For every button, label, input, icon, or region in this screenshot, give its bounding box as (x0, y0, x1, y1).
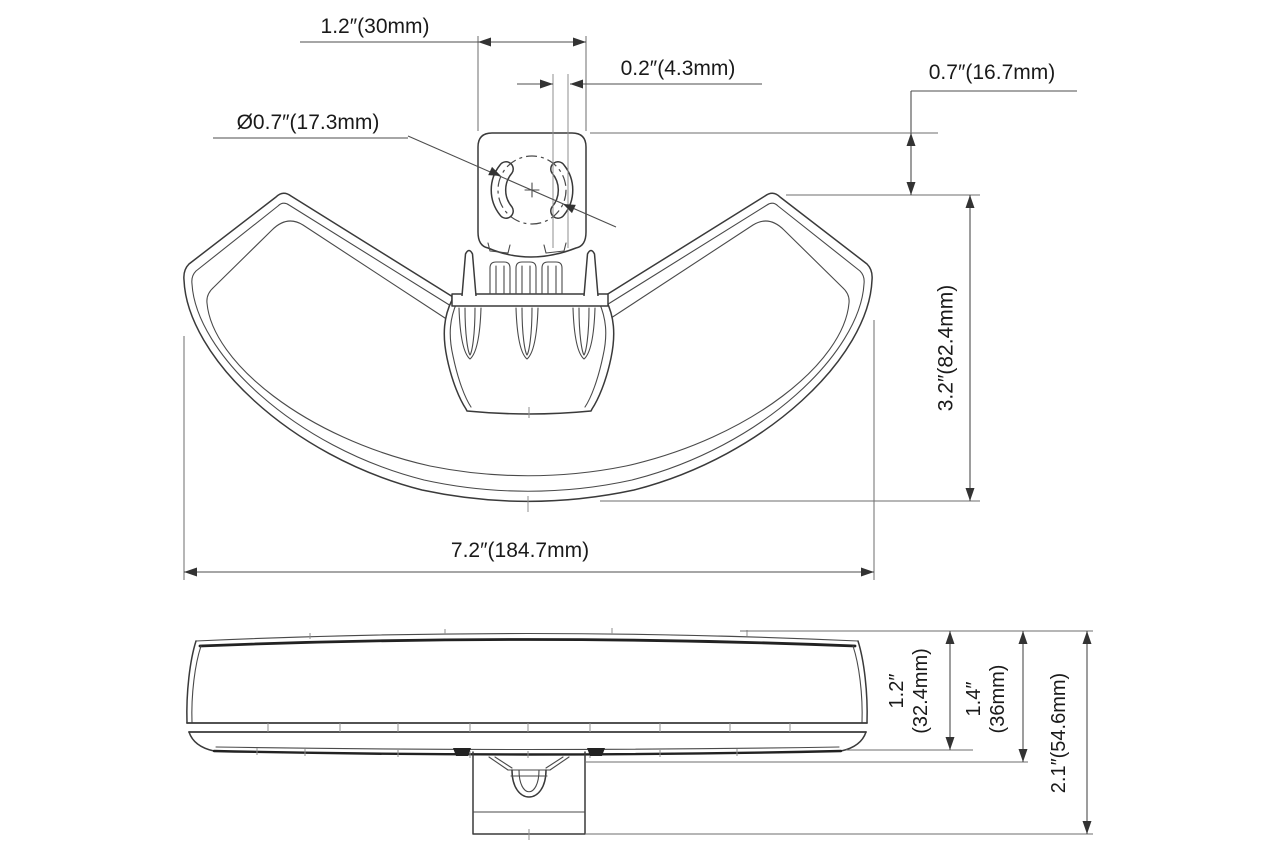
clamp-bolts (490, 262, 562, 294)
side-mount-bracket (453, 748, 605, 840)
side-right-edge-inner (853, 646, 862, 723)
front-mount-plate (478, 74, 586, 257)
dim-base-height-label-in: 1.4″ (963, 682, 985, 717)
dim-lens-height-label-mm: (32.4mm) (910, 648, 932, 734)
dim-base-height: 1.4″ (36mm) (585, 631, 1028, 762)
dim-lens-height-label-in: 1.2″ (886, 674, 908, 709)
dim-arrow (966, 195, 975, 208)
thumbscrew-loop-outer (512, 770, 546, 797)
clamp-jaw-right (587, 748, 605, 756)
dim-hole-diameter-label: Ø0.7″(17.3mm) (237, 111, 380, 134)
dim-body-height: 3.2″(82.4mm) (600, 195, 980, 501)
technical-drawing-page: 1.2″(30mm) 0.2″(4.3mm) Ø0.7″(17.3mm) 0.7… (0, 0, 1280, 853)
dim-overall-width-label: 7.2″(184.7mm) (451, 539, 589, 562)
dim-bracket-offset: 0.7″(16.7mm) (590, 61, 1077, 195)
dim-arrow (540, 80, 553, 89)
front-view: 1.2″(30mm) 0.2″(4.3mm) Ø0.7″(17.3mm) 0.7… (184, 15, 1077, 580)
front-clamp-base (452, 251, 608, 307)
dim-arrow (966, 488, 975, 501)
dim-arrow (1083, 631, 1092, 644)
dimension-drawing: 1.2″(30mm) 0.2″(4.3mm) Ø0.7″(17.3mm) 0.7… (0, 0, 1280, 853)
dim-body-height-label: 3.2″(82.4mm) (935, 285, 958, 411)
dim-arrow (946, 737, 955, 750)
dim-arrow (184, 568, 197, 577)
dim-bracket-offset-leader (911, 91, 1077, 133)
front-center-hub (444, 296, 613, 418)
dim-base-height-label-mm: (36mm) (987, 665, 1009, 734)
dim-total-height-label: 2.1″(54.6mm) (1048, 673, 1070, 793)
dim-slot-width: 0.2″(4.3mm) (517, 57, 762, 89)
dim-arrow (907, 133, 916, 146)
dim-arrow (478, 38, 491, 47)
thumbscrew-loop-inner (519, 770, 539, 792)
dim-arrow (946, 631, 955, 644)
side-top-band (200, 640, 855, 647)
bracket-box (473, 752, 585, 834)
dim-bracket-offset-extensions (590, 133, 980, 195)
side-view: 1.2″ (32.4mm) 1.4″ (36mm) 2.1″(54.6mm) (187, 628, 1093, 840)
dim-arrow (1083, 821, 1092, 834)
side-bottom-inner (216, 747, 839, 750)
dim-arrow (1019, 631, 1028, 644)
side-body-profile (187, 628, 867, 758)
dim-slot-width-label: 0.2″(4.3mm) (621, 57, 736, 80)
dim-arrow (573, 38, 586, 47)
dim-bracket-width-label: 1.2″(30mm) (321, 15, 430, 38)
dim-arrow (861, 568, 874, 577)
side-mid-band (187, 723, 867, 732)
bracket-funnel (489, 757, 569, 770)
clamp-jaw-left (453, 748, 471, 756)
side-band-ticks (268, 723, 790, 732)
dim-bracket-offset-label: 0.7″(16.7mm) (929, 61, 1055, 84)
dim-arrow (570, 80, 583, 89)
side-left-edge-inner (192, 646, 201, 723)
dim-arrow (907, 182, 916, 195)
dim-arrow (1019, 749, 1028, 762)
